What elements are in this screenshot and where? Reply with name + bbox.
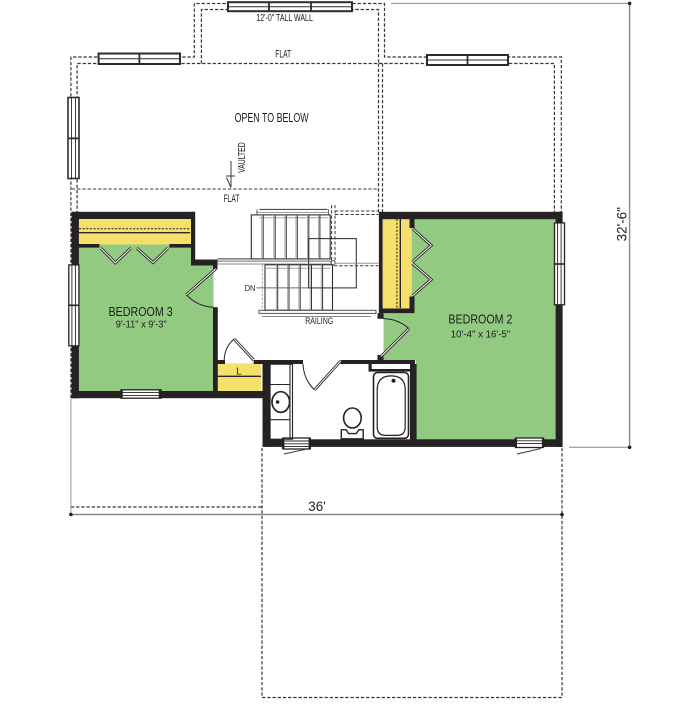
svg-text:36': 36' <box>308 498 325 514</box>
svg-text:9'-11" x 9'-3": 9'-11" x 9'-3" <box>116 319 167 330</box>
svg-text:10'-4" x 16'-5": 10'-4" x 16'-5" <box>451 330 511 341</box>
svg-text:BEDROOM 3: BEDROOM 3 <box>108 304 172 319</box>
svg-text:FLAT: FLAT <box>275 48 291 60</box>
svg-text:12'-0" TALL WALL: 12'-0" TALL WALL <box>256 13 313 24</box>
svg-text:L: L <box>236 366 242 377</box>
svg-text:BEDROOM 2: BEDROOM 2 <box>448 312 512 327</box>
svg-text:DN: DN <box>245 284 256 293</box>
svg-text:VAULTED: VAULTED <box>237 142 248 173</box>
svg-text:OPEN TO BELOW: OPEN TO BELOW <box>235 111 309 125</box>
svg-text:FLAT: FLAT <box>224 193 240 205</box>
svg-text:RAILING: RAILING <box>305 316 333 326</box>
svg-text:32'-6": 32'-6" <box>614 207 630 241</box>
